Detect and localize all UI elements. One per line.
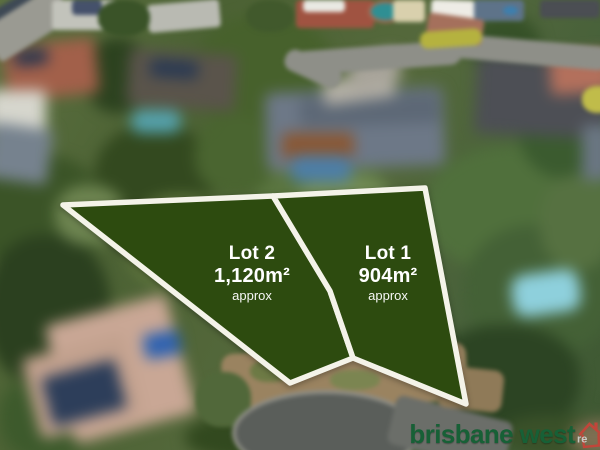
lot2-label: Lot 2 1,120m² approx xyxy=(214,242,290,303)
lot-boundaries-overlay xyxy=(0,0,600,450)
house-icon: re xyxy=(576,420,600,450)
lot2-area: 1,120m² xyxy=(214,265,290,288)
lot1-name: Lot 1 xyxy=(359,242,418,265)
agency-logo: brisbane west re xyxy=(409,420,600,450)
lot1-label: Lot 1 904m² approx xyxy=(359,242,418,303)
listing-image: Lot 2 1,120m² approx Lot 1 904m² approx … xyxy=(0,0,600,450)
lot2-approx: approx xyxy=(214,288,290,303)
lot2-name: Lot 2 xyxy=(214,242,290,265)
lot1-approx: approx xyxy=(359,288,418,303)
agency-name: brisbane west xyxy=(409,420,575,448)
logo-monogram: re xyxy=(577,434,587,446)
lot1-area: 904m² xyxy=(359,265,418,288)
